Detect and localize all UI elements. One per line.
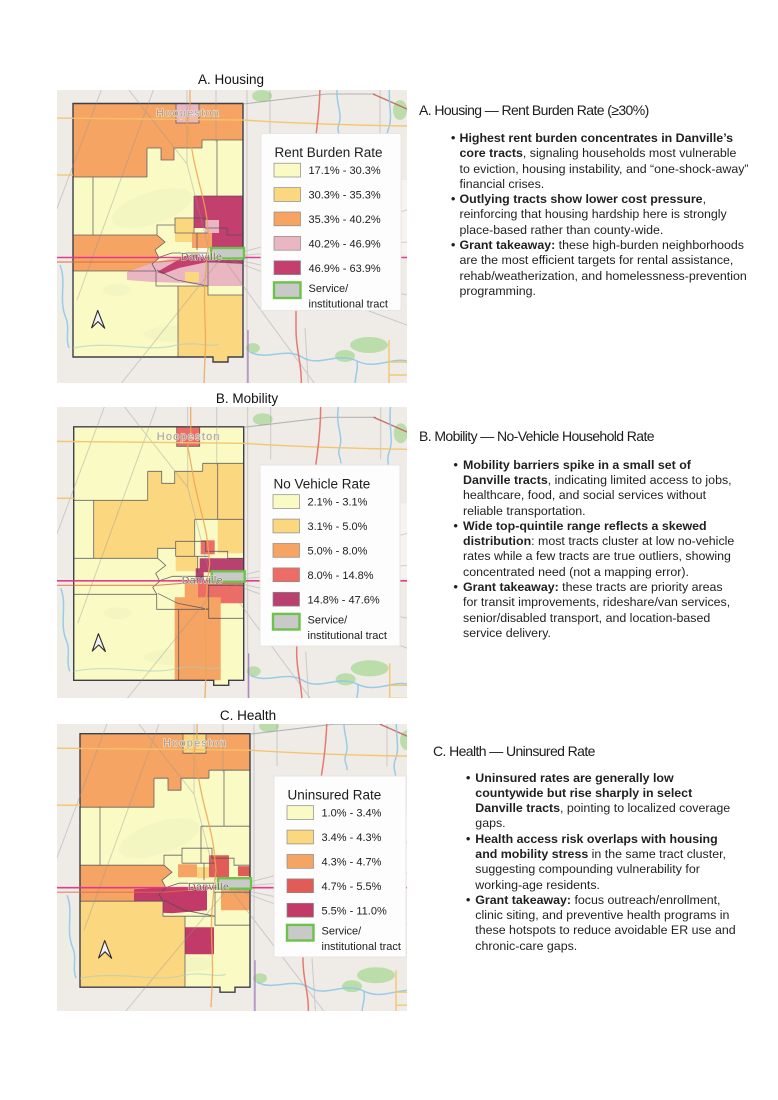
svg-text:Rent Burden Rate: Rent Burden Rate (275, 145, 383, 160)
svg-text:3.4% - 4.3%: 3.4% - 4.3% (322, 832, 382, 844)
svg-text:Service/: Service/ (322, 925, 363, 937)
svg-text:Hoopeston: Hoopeston (157, 431, 221, 443)
svg-text:Hoopeston: Hoopeston (163, 738, 227, 750)
svg-text:30.3% - 35.3%: 30.3% - 35.3% (309, 190, 381, 202)
svg-text:institutional tract: institutional tract (308, 630, 387, 642)
svg-text:8.0% - 14.8%: 8.0% - 14.8% (308, 570, 374, 582)
svg-text:Service/: Service/ (309, 283, 350, 295)
svg-text:46.9% - 63.9%: 46.9% - 63.9% (309, 263, 381, 275)
svg-text:2.1% - 3.1%: 2.1% - 3.1% (308, 497, 368, 509)
svg-text:4.7% - 5.5%: 4.7% - 5.5% (322, 881, 382, 893)
svg-text:35.3% - 40.2%: 35.3% - 40.2% (309, 214, 381, 226)
svg-text:Hoopeston: Hoopeston (156, 108, 220, 120)
svg-text:institutional tract: institutional tract (309, 298, 388, 310)
svg-text:institutional tract: institutional tract (322, 941, 401, 953)
svg-text:40.2% - 46.9%: 40.2% - 46.9% (309, 238, 381, 250)
svg-text:Service/: Service/ (308, 614, 349, 626)
svg-text:5.5% - 11.0%: 5.5% - 11.0% (322, 905, 387, 917)
svg-text:1.0% - 3.4%: 1.0% - 3.4% (322, 808, 382, 820)
svg-text:17.1% - 30.3%: 17.1% - 30.3% (309, 165, 381, 177)
svg-text:3.1% - 5.0%: 3.1% - 5.0% (308, 521, 368, 533)
svg-text:Danville: Danville (181, 251, 222, 263)
svg-text:Uninsured Rate: Uninsured Rate (288, 788, 382, 803)
svg-text:Danville: Danville (188, 881, 229, 893)
svg-text:14.8% - 47.6%: 14.8% - 47.6% (308, 594, 380, 606)
svg-text:No Vehicle Rate: No Vehicle Rate (274, 477, 371, 492)
svg-text:4.3% - 4.7%: 4.3% - 4.7% (322, 857, 382, 869)
svg-text:Danville: Danville (182, 574, 223, 586)
svg-text:5.0% - 8.0%: 5.0% - 8.0% (308, 546, 368, 558)
